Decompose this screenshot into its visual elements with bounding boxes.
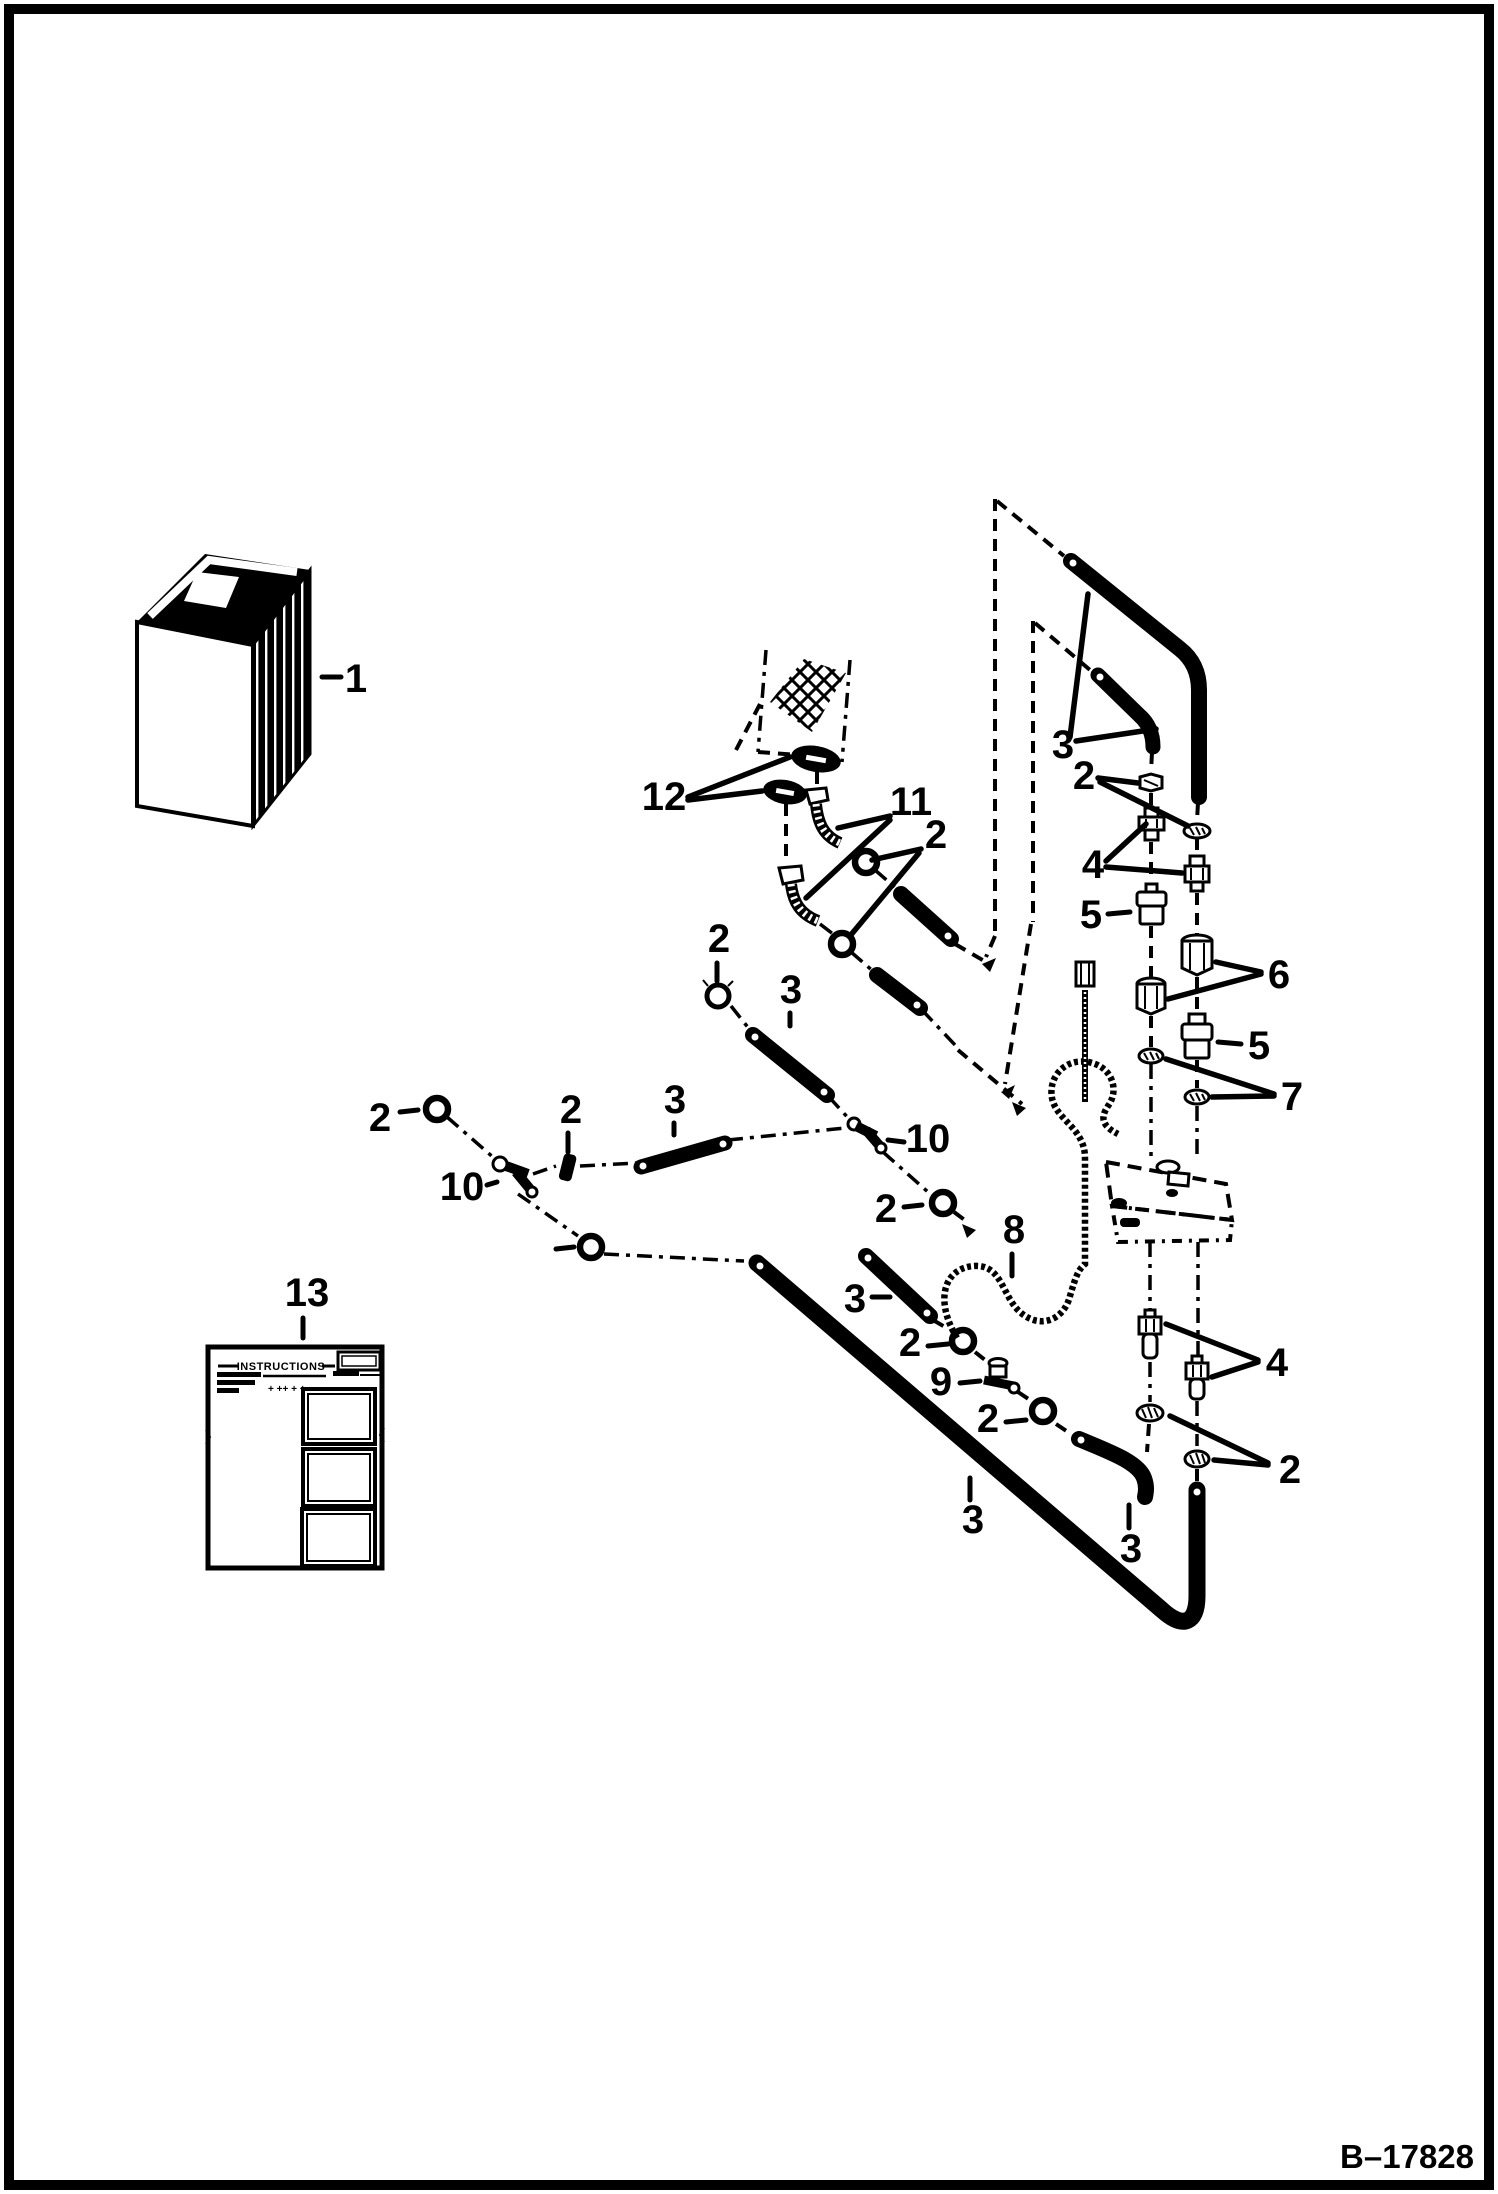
callout-2a: 2 <box>925 813 947 857</box>
part-2-sleeve <box>558 1153 577 1182</box>
part-4-bolt-1 <box>1139 1310 1161 1358</box>
part-3-hose-mid <box>641 1143 725 1167</box>
part-3-hose-a <box>753 1035 827 1095</box>
callout-leader-9 <box>960 1381 980 1383</box>
callout-2i: 2 <box>1279 1448 1301 1492</box>
part-5-coupler-left <box>1137 884 1166 924</box>
part-6-hex-fitting-left <box>1137 978 1165 1014</box>
part-2-oring-d <box>580 1236 602 1258</box>
part-2-washer-bottom-1 <box>1137 1405 1163 1421</box>
callout-4a: 4 <box>1082 843 1105 887</box>
callout-3c: 3 <box>664 1078 686 1122</box>
callout-leader-5b <box>1218 1042 1241 1044</box>
part-2-clamp <box>703 980 733 1007</box>
callout-leader-2d2 <box>556 1247 574 1249</box>
callout-10b: 10 <box>906 1117 951 1161</box>
mounting-plate-hidden <box>1106 1161 1232 1242</box>
part-9-tee-fitting <box>984 1359 1019 1394</box>
callout-12: 12 <box>642 775 687 819</box>
callout-2e: 2 <box>369 1096 391 1140</box>
part-4-nipple-right <box>1185 856 1209 891</box>
part-6-hex-fitting-right <box>1182 935 1212 975</box>
callout-8: 8 <box>1003 1208 1025 1252</box>
callout-2f: 2 <box>875 1187 897 1231</box>
lower-right-fasteners <box>1137 1242 1268 1484</box>
callout-2c: 2 <box>708 917 730 961</box>
callout-3f: 3 <box>1120 1527 1142 1571</box>
instruction-sheet-title: INSTRUCTIONS <box>237 1361 326 1373</box>
callout-leader-4a <box>1106 824 1146 861</box>
callout-6: 6 <box>1268 953 1290 997</box>
figure-number: B–17828 <box>1340 2138 1474 2175</box>
callout-5b: 5 <box>1248 1024 1270 1068</box>
parts-diagram-page: INSTRUCTIONS + ++ + + 112112324565723232… <box>0 0 1498 2194</box>
callout-leader-2g <box>928 1344 948 1346</box>
part-7-washer-right <box>1185 1090 1209 1104</box>
part-1-kit-box <box>137 554 341 826</box>
callout-2d: 2 <box>560 1088 582 1132</box>
part-13-instruction-sheet: INSTRUCTIONS + ++ + + <box>206 1318 384 1568</box>
part-2-oring-a <box>426 1098 448 1120</box>
callout-leader-10b <box>888 1140 904 1142</box>
callout-4b: 4 <box>1266 1341 1289 1385</box>
callout-7: 7 <box>1281 1075 1303 1119</box>
part-2-oring-f <box>1032 1400 1054 1422</box>
callout-10a: 10 <box>440 1165 485 1209</box>
callout-leader-2f <box>904 1205 922 1207</box>
callout-leader-4b <box>1166 1324 1258 1360</box>
callout-3d: 3 <box>844 1277 866 1321</box>
callout-2h: 2 <box>977 1397 999 1441</box>
callout-2b: 2 <box>1073 754 1095 798</box>
strainer-screen <box>736 650 850 762</box>
callout-leader-6 <box>1216 962 1261 972</box>
callout-3b: 3 <box>780 968 802 1012</box>
bolt-head <box>1076 962 1094 986</box>
callout-leader-2e <box>400 1110 418 1112</box>
callout-2g: 2 <box>899 1321 921 1365</box>
callout-3a: 3 <box>1052 723 1074 767</box>
callout-5a: 5 <box>1080 893 1102 937</box>
part-10-tee-a <box>493 1157 537 1197</box>
instruction-sheet-marks: + ++ + + <box>268 1384 306 1395</box>
part-8-formed-tube <box>944 962 1118 1338</box>
callout-9: 9 <box>930 1360 952 1404</box>
part-4-bolt-2 <box>1186 1356 1208 1399</box>
callout-13: 13 <box>285 1271 330 1315</box>
part-10-tee-b <box>848 1118 886 1153</box>
callout-leader-2h <box>1006 1420 1026 1422</box>
callout-leader-10a <box>487 1182 497 1185</box>
part-5-coupler-right <box>1182 1014 1212 1058</box>
part-2-oring-e <box>952 1330 974 1352</box>
part-7-washer-left <box>1139 1049 1163 1063</box>
callout-1: 1 <box>345 657 367 701</box>
right-fitting-column <box>1098 752 1274 1158</box>
callout-3e: 3 <box>962 1498 984 1542</box>
part-2-washer-bottom-2 <box>1185 1451 1209 1467</box>
callout-leader-5a <box>1108 912 1130 914</box>
part-2-oring-c <box>932 1192 954 1214</box>
